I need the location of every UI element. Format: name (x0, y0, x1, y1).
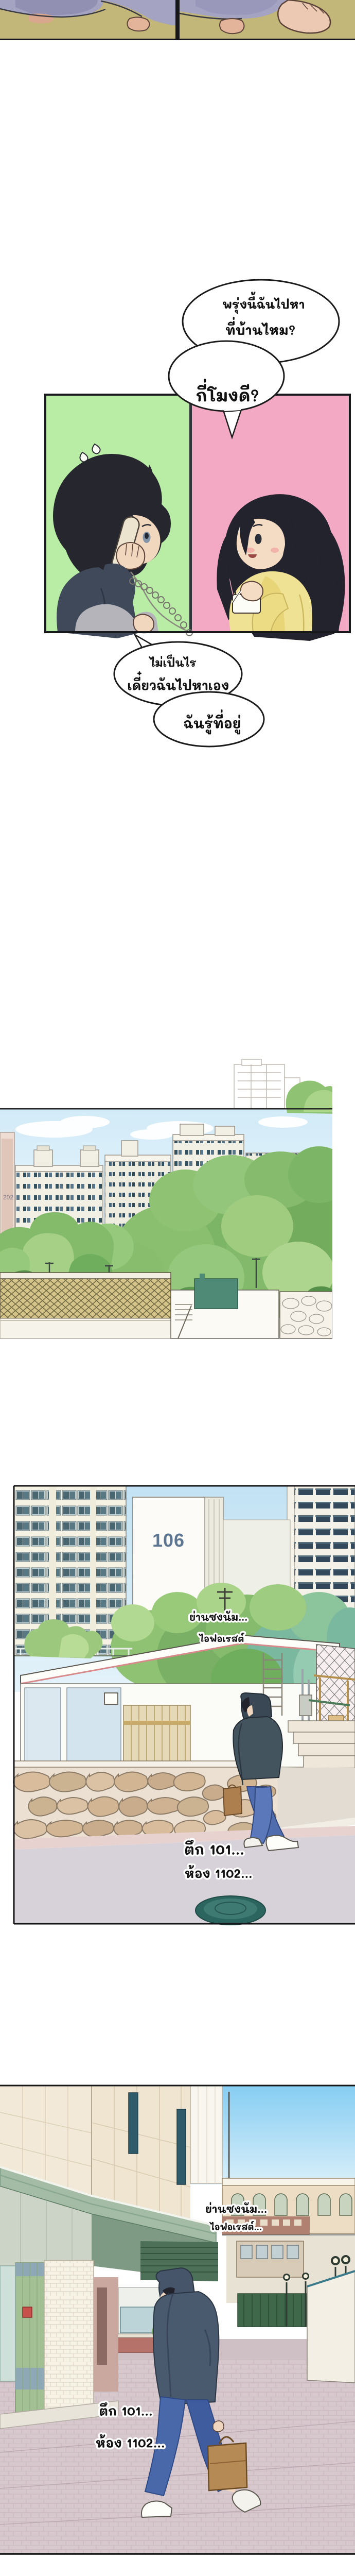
svg-text:106: 106 (152, 1530, 185, 1551)
svg-text:202: 202 (3, 1194, 13, 1201)
